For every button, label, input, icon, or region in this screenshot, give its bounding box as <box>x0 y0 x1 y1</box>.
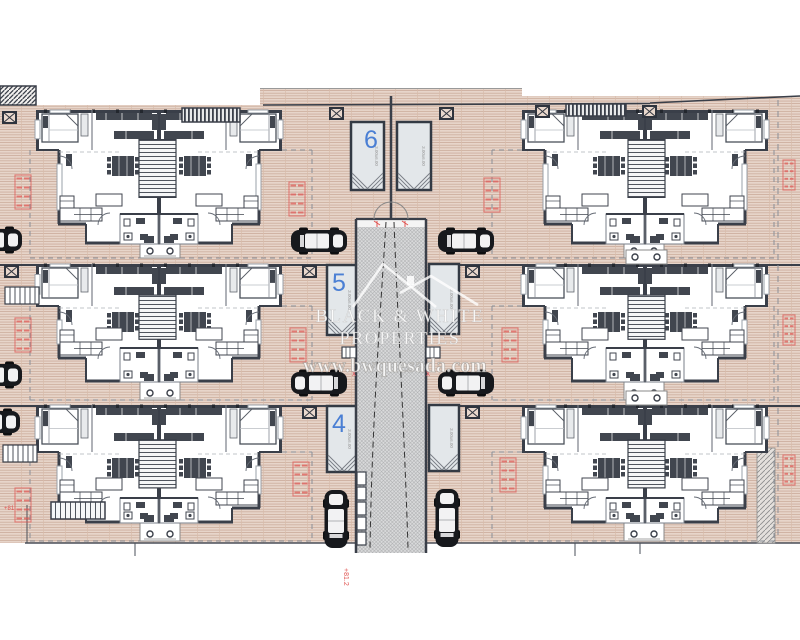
svg-text:4: 4 <box>332 410 346 438</box>
svg-text:+81.2: +81.2 <box>342 568 349 586</box>
svg-text:5: 5 <box>332 269 346 297</box>
svg-text:BLACK & WHITE: BLACK & WHITE <box>316 307 485 327</box>
svg-text:PROPERTIES: PROPERTIES <box>340 328 461 348</box>
svg-text:www.bwquesada.com: www.bwquesada.com <box>303 356 487 377</box>
svg-text:3.00x6.00: 3.00x6.00 <box>449 428 454 448</box>
svg-text:3.00x6.00: 3.00x6.00 <box>347 429 352 449</box>
svg-text:6: 6 <box>364 126 378 154</box>
svg-text:+81: +81 <box>4 506 15 512</box>
svg-text:3.00x6.00: 3.00x6.00 <box>421 146 426 166</box>
